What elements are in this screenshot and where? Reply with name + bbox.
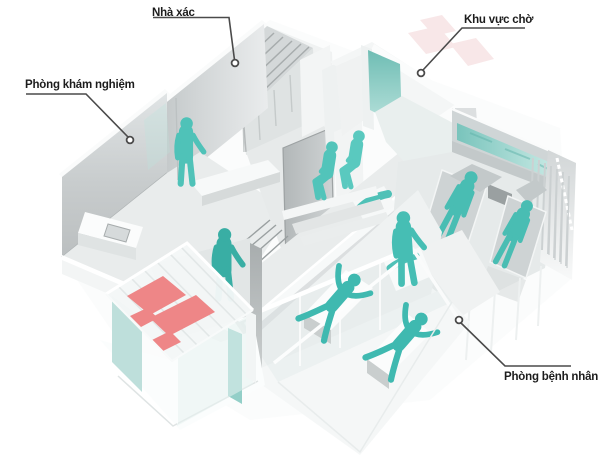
svg-text:Phòng bệnh nhân: Phòng bệnh nhân [504, 371, 598, 383]
svg-text:Phòng khám nghiệm: Phòng khám nghiệm [25, 79, 135, 91]
svg-text:Khu vực chờ: Khu vực chờ [464, 14, 534, 26]
